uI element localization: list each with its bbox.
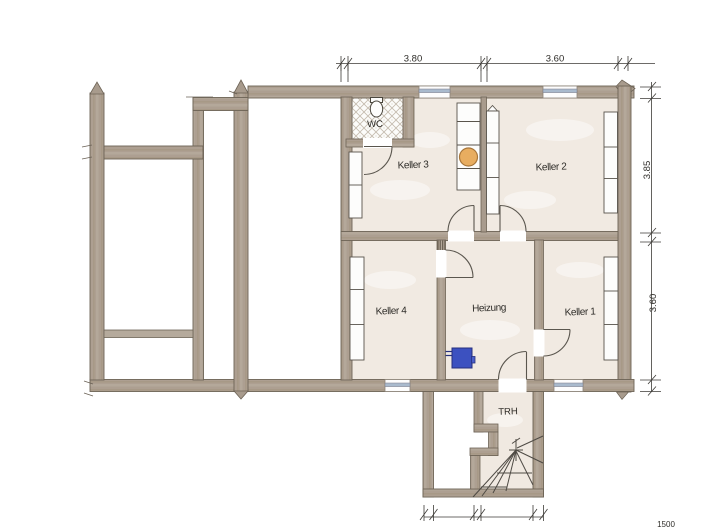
svg-text:1500: 1500 bbox=[657, 520, 675, 529]
svg-text:Keller 1: Keller 1 bbox=[565, 306, 597, 318]
svg-text:Keller 2: Keller 2 bbox=[536, 161, 568, 173]
svg-text:Keller 3: Keller 3 bbox=[398, 159, 430, 171]
svg-text:3.85: 3.85 bbox=[642, 161, 653, 180]
svg-text:WC: WC bbox=[367, 119, 383, 131]
svg-text:TRH: TRH bbox=[498, 406, 518, 418]
svg-text:3.60: 3.60 bbox=[648, 294, 659, 313]
svg-text:3.60: 3.60 bbox=[546, 54, 565, 65]
svg-text:3.80: 3.80 bbox=[404, 54, 423, 65]
svg-text:Keller 4: Keller 4 bbox=[376, 305, 408, 317]
svg-text:Heizung: Heizung bbox=[472, 302, 506, 314]
